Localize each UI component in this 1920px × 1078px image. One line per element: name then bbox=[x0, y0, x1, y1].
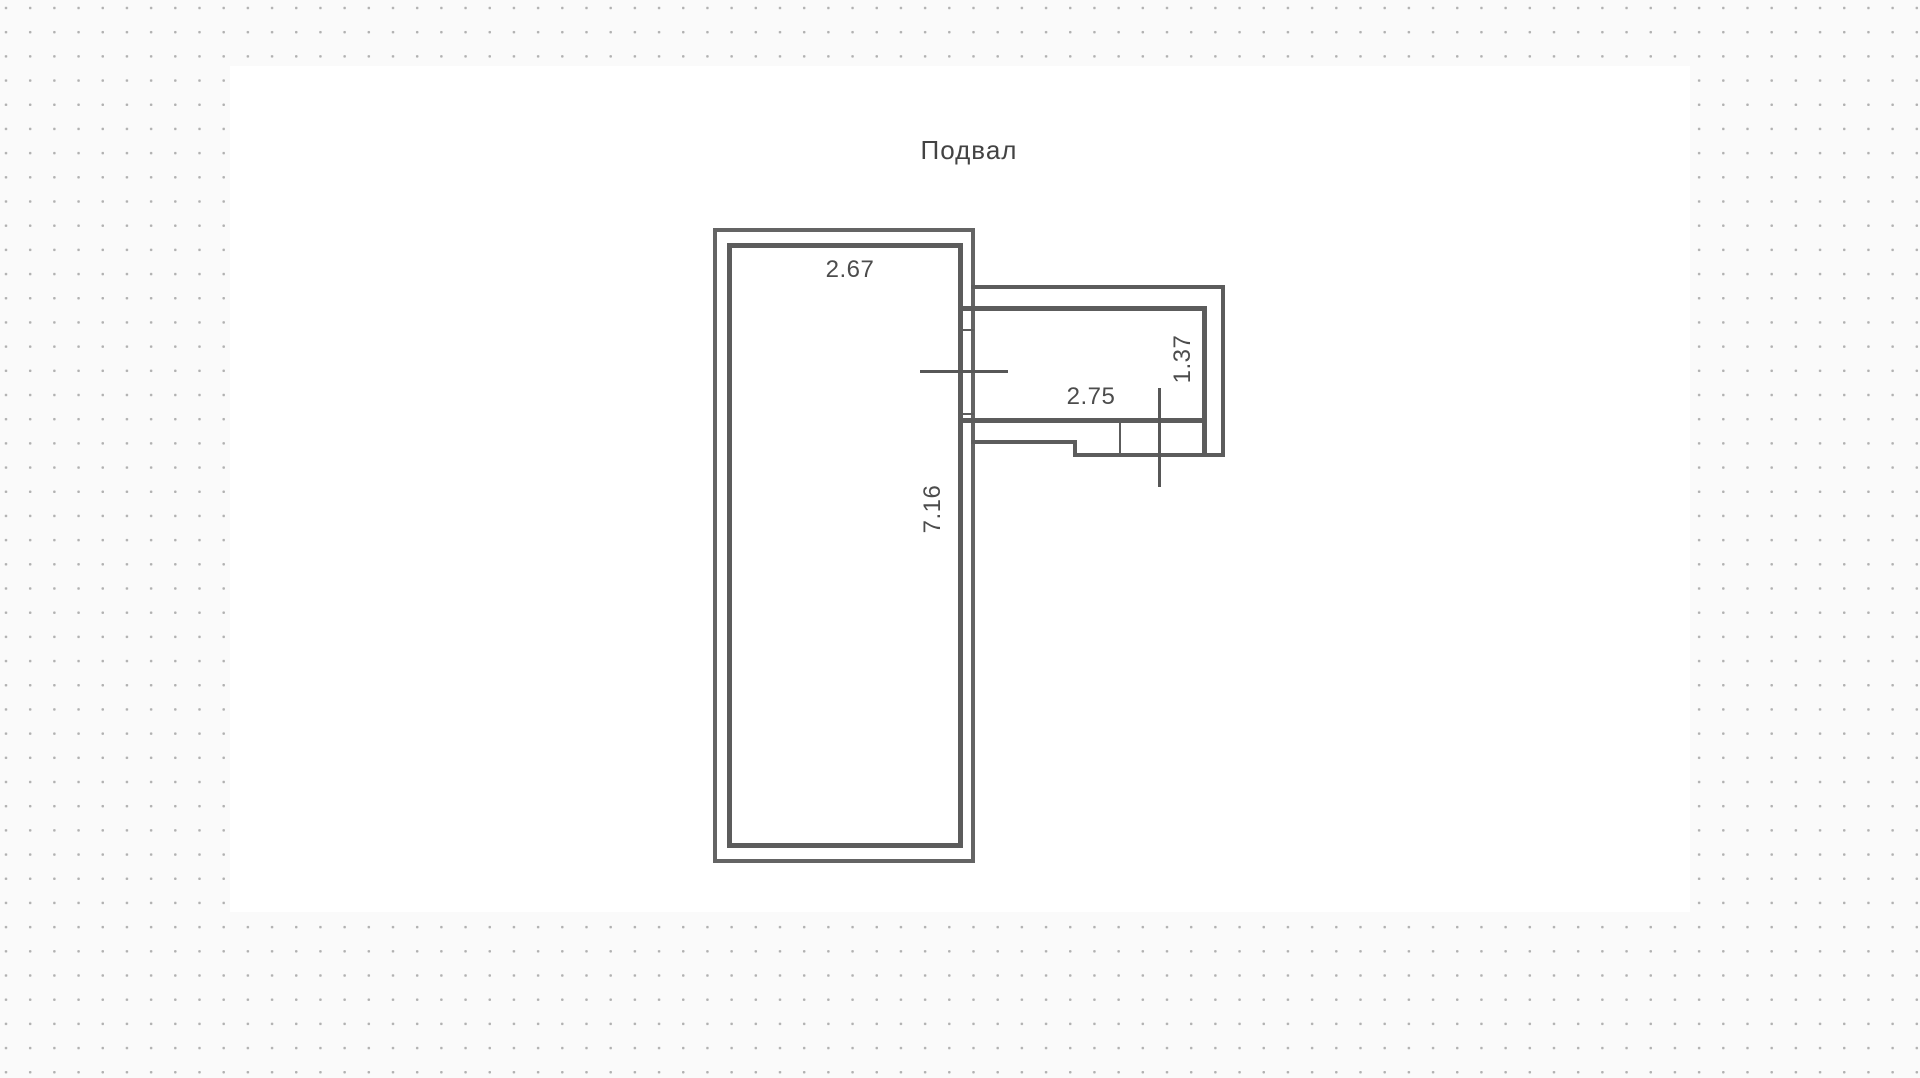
doorway-opening-line bbox=[920, 370, 1008, 373]
annex-outer-wall-bottom-right bbox=[1077, 453, 1225, 457]
doorway-jamb-top bbox=[958, 329, 974, 331]
annex-inner-wall-right bbox=[1202, 306, 1207, 453]
annex-outer-wall-top bbox=[971, 285, 1225, 289]
floor-title: Подвал bbox=[819, 135, 1119, 165]
dimension-main-room-width: 2.67 bbox=[790, 257, 910, 283]
annex-outer-wall-bottom-left bbox=[971, 440, 1077, 444]
floor-plan: Подвал 2.67 7.16 2.75 1.37 bbox=[0, 0, 1920, 1078]
dimension-annex-depth: 1.37 bbox=[1170, 299, 1196, 419]
window-jamb-left bbox=[1119, 423, 1121, 453]
window-opening-line bbox=[1158, 388, 1161, 487]
doorway-jamb-bottom bbox=[958, 413, 974, 415]
annex-outer-wall-right bbox=[1221, 285, 1225, 457]
dimension-annex-width: 2.75 bbox=[1031, 384, 1151, 410]
dimension-main-room-depth: 7.16 bbox=[920, 449, 946, 569]
